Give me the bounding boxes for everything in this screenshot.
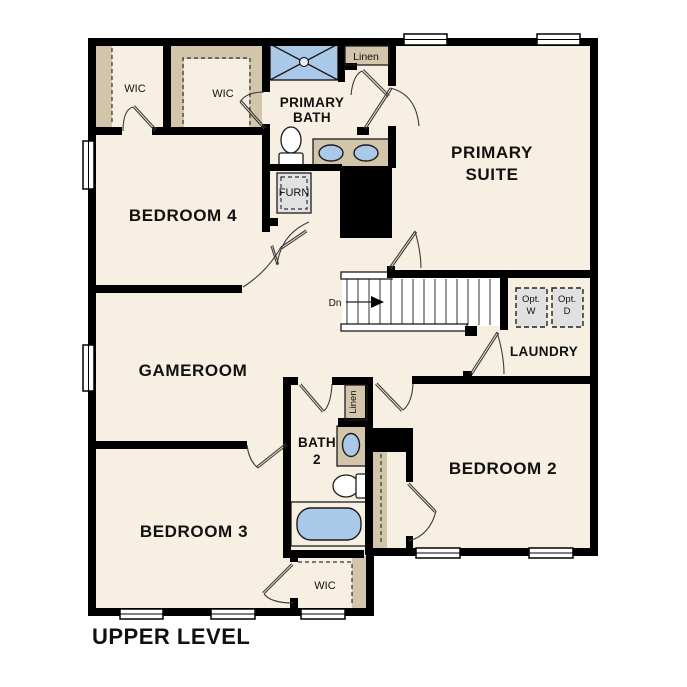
wic-a-label: WIC xyxy=(124,83,145,95)
bedroom2-closet-shelf xyxy=(373,452,387,548)
wic-b-shelf-left xyxy=(171,46,184,132)
primary-suite-label-line2: SUITE xyxy=(465,165,518,184)
window xyxy=(404,34,447,45)
window xyxy=(529,548,573,558)
wic-a-shelf xyxy=(96,46,112,127)
bath2-toilet-icon xyxy=(333,474,367,498)
window xyxy=(537,34,580,45)
bedroom2-label: BEDROOM 2 xyxy=(449,459,557,478)
opt-dryer-label-line1: Opt. xyxy=(558,294,576,305)
bath2-label-line2: 2 xyxy=(313,452,321,467)
shower-icon xyxy=(270,44,338,80)
furnace-label: FURN xyxy=(279,187,310,199)
wic-b-shelf-top xyxy=(171,46,262,59)
wic-c-shelf xyxy=(352,556,366,608)
floor-plan-drawing: WIC WIC PRIMARY BATH Linen PRIMARY SUITE… xyxy=(0,0,687,687)
sink-icon xyxy=(319,145,343,161)
opt-washer-label-line1: Opt. xyxy=(522,294,540,305)
stair-rail-bottom xyxy=(341,324,467,331)
opt-dryer-label-line2: D xyxy=(564,306,571,317)
bedroom3-label: BEDROOM 3 xyxy=(140,522,248,541)
gameroom-label: GAMEROOM xyxy=(139,361,248,380)
window xyxy=(301,609,345,619)
chase xyxy=(340,166,392,238)
sink-icon xyxy=(343,434,360,457)
wic-c-label: WIC xyxy=(314,580,335,592)
primary-bath-label-line2: BATH xyxy=(293,110,331,125)
window xyxy=(120,609,163,619)
bath2-label-line1: BATH xyxy=(298,435,336,450)
laundry-label: LAUNDRY xyxy=(510,344,578,359)
window xyxy=(211,609,255,619)
wic-b-label: WIC xyxy=(212,88,233,100)
window xyxy=(83,141,94,189)
stair-direction-label: Dn xyxy=(329,298,342,309)
bedroom4-label: BEDROOM 4 xyxy=(129,206,237,225)
sink-icon xyxy=(354,145,378,161)
opt-washer-label-line2: W xyxy=(527,306,536,317)
primary-toilet-icon xyxy=(279,127,303,166)
window xyxy=(416,548,460,558)
staircase xyxy=(341,272,502,331)
primary-suite-label-line1: PRIMARY xyxy=(451,143,533,162)
linen-b-label: Linen xyxy=(348,390,359,413)
window xyxy=(83,345,94,391)
primary-bath-label-line1: PRIMARY xyxy=(280,95,345,110)
floor-plan-page: WIC WIC PRIMARY BATH Linen PRIMARY SUITE… xyxy=(0,0,687,687)
linen-a-label: Linen xyxy=(353,51,379,63)
stair-rail-top xyxy=(341,272,392,279)
level-title: UPPER LEVEL xyxy=(92,624,250,649)
